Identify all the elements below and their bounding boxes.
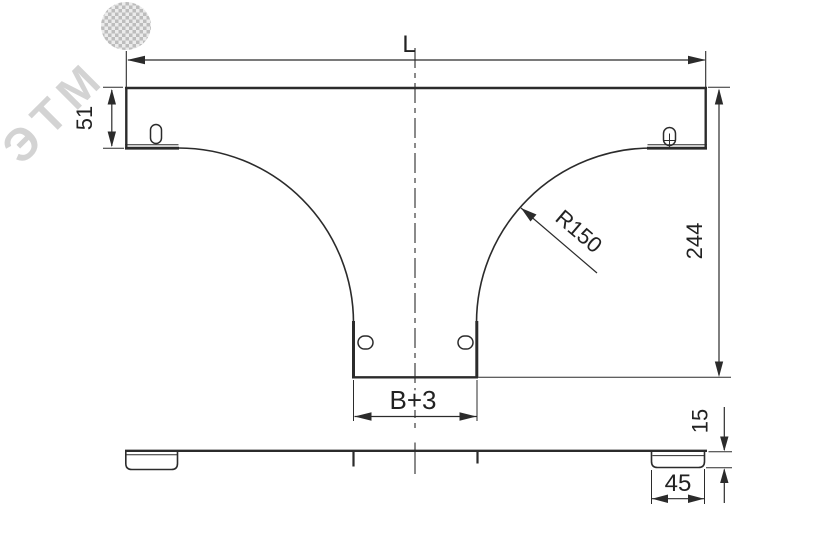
arrowhead-up bbox=[715, 89, 723, 105]
dim-label-radius: R150 bbox=[551, 205, 607, 258]
right-latch-tab bbox=[652, 452, 705, 468]
arrowhead-down bbox=[108, 132, 116, 148]
arrowhead-left bbox=[127, 56, 145, 65]
arrowhead-down bbox=[720, 437, 728, 452]
drawing-canvas: ЭТМ bbox=[0, 0, 833, 559]
technical-drawing: L 51 244 R150 B+3 bbox=[0, 0, 833, 559]
right-bend-curve bbox=[476, 148, 651, 323]
left-bend-curve bbox=[179, 148, 354, 323]
arrowhead-left bbox=[355, 412, 372, 421]
arrowhead-right bbox=[460, 412, 477, 421]
dim-label-branch-width: B+3 bbox=[390, 385, 437, 415]
top-view bbox=[125, 48, 731, 433]
dimension-B3: B+3 bbox=[354, 380, 478, 421]
dim-label-tab-width: 45 bbox=[665, 470, 692, 497]
stem-right-slot bbox=[458, 336, 473, 349]
dim-label-flange-height: 51 bbox=[72, 106, 97, 130]
dim-label-length: L bbox=[402, 31, 415, 58]
dimension-51: 51 bbox=[72, 87, 124, 148]
stem-left-slot bbox=[358, 336, 373, 349]
top-right-slot-center-mark bbox=[663, 134, 676, 148]
side-view bbox=[125, 443, 707, 475]
arrowhead-up bbox=[720, 468, 728, 483]
arrowhead-up bbox=[108, 89, 116, 105]
dimension-L: L bbox=[127, 31, 706, 64]
dimension-45: 45 bbox=[652, 469, 705, 504]
arrowhead-right bbox=[688, 56, 706, 65]
top-left-slot bbox=[151, 125, 162, 144]
dimension-R150: R150 bbox=[521, 205, 607, 273]
dim-label-profile-height: 15 bbox=[688, 409, 713, 433]
dim-label-total-height: 244 bbox=[682, 223, 707, 260]
dimension-15: 15 bbox=[688, 407, 733, 503]
arrowhead-down bbox=[715, 362, 723, 378]
left-latch-tab bbox=[126, 452, 178, 470]
